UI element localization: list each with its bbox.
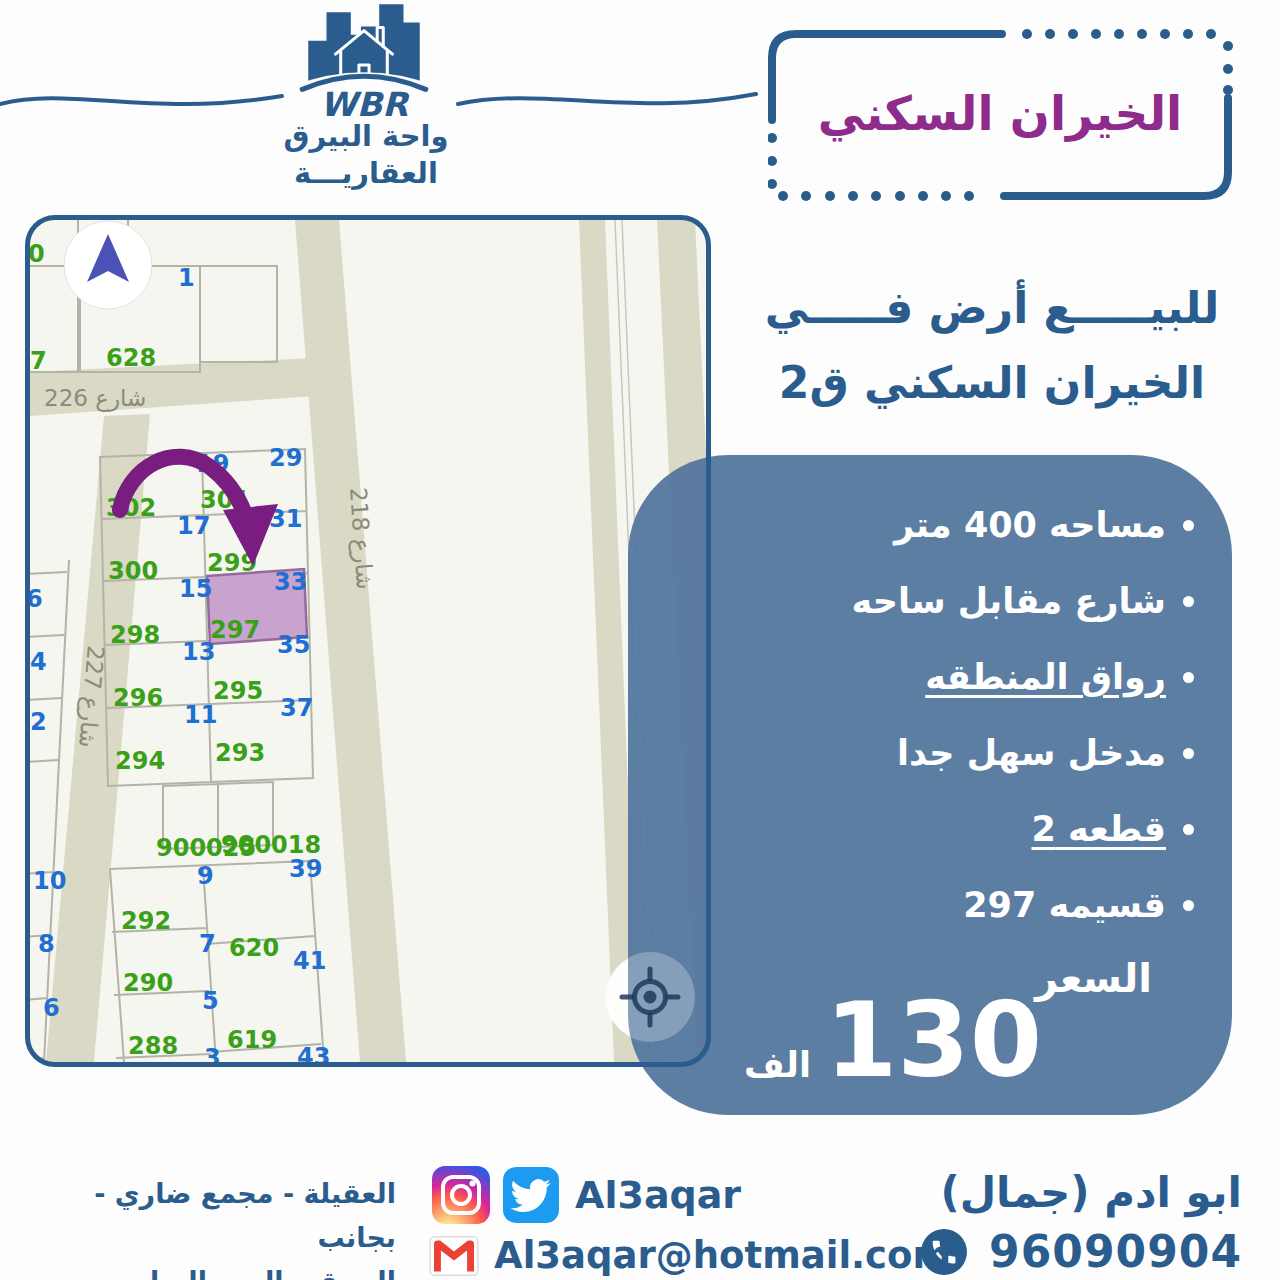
svg-text:17: 17 [177, 512, 210, 540]
header-wave-left-icon [0, 78, 290, 126]
sale-headline-line2: الخيران السكني ق2 [746, 345, 1238, 420]
svg-text:15: 15 [179, 575, 212, 603]
svg-text:6: 6 [30, 585, 43, 613]
svg-text:292: 292 [121, 907, 171, 935]
north-compass-icon [64, 221, 152, 309]
bullet-dot-icon [1183, 672, 1194, 683]
svg-text:9: 9 [197, 862, 214, 890]
svg-text:294: 294 [115, 747, 165, 775]
svg-text:295: 295 [213, 677, 263, 705]
svg-text:7: 7 [30, 347, 47, 375]
svg-text:7: 7 [199, 930, 216, 958]
social-row: Al3aqar [432, 1166, 741, 1224]
details-panel: مساحه 400 مترشارع مقابل ساحهرواق المنطقه… [628, 455, 1232, 1115]
svg-text:300: 300 [108, 557, 158, 585]
feature-item: مساحه 400 متر [628, 487, 1232, 563]
office-address-line2: البيرق - الدور السادس - مكتب 6 [24, 1260, 396, 1280]
svg-text:شارع 226: شارع 226 [44, 385, 146, 412]
feature-item: مدخل سهل جدا [628, 715, 1232, 791]
svg-text:290: 290 [123, 969, 173, 997]
bullet-dot-icon [1183, 520, 1194, 531]
svg-text:11: 11 [184, 701, 217, 729]
svg-text:8: 8 [38, 930, 55, 958]
svg-text:620: 620 [229, 934, 279, 962]
gmail-icon [428, 1236, 480, 1276]
header-wave-right-icon [452, 78, 762, 126]
brand-name-line2: العقاريـــة [268, 155, 464, 192]
svg-text:43: 43 [297, 1043, 330, 1062]
feature-text: قطعه 2 [1031, 809, 1166, 849]
svg-text:628: 628 [106, 344, 156, 372]
svg-text:293: 293 [215, 739, 265, 767]
svg-text:4: 4 [30, 648, 47, 676]
phone-row: 96090904 [917, 1226, 1242, 1277]
feature-item: شارع مقابل ساحه [628, 563, 1232, 639]
bullet-dot-icon [1183, 824, 1194, 835]
svg-text:1: 1 [178, 264, 195, 292]
svg-text:39: 39 [289, 855, 322, 883]
brand-name: واحة البيرق العقاريـــة [268, 118, 464, 192]
svg-text:13: 13 [182, 638, 215, 666]
svg-text:296: 296 [113, 684, 163, 712]
feature-item: رواق المنطقه [628, 639, 1232, 715]
svg-text:10: 10 [33, 867, 66, 895]
bullet-dot-icon [1183, 748, 1194, 759]
sale-headline-line1: للبيـــــع أرض فـــــي [746, 270, 1238, 345]
svg-text:33: 33 [274, 568, 307, 596]
svg-text:29: 29 [269, 444, 302, 472]
svg-text:2: 2 [30, 708, 47, 736]
svg-text:41: 41 [293, 947, 326, 975]
feature-text: رواق المنطقه [925, 657, 1166, 697]
price-value: 130 [825, 993, 1042, 1089]
price-unit: الف [744, 1045, 811, 1085]
svg-text:297: 297 [210, 616, 260, 644]
price: الف 130 [730, 993, 1042, 1089]
project-title: الخيران السكني [818, 86, 1182, 147]
gps-target-icon[interactable] [585, 932, 715, 1062]
phone-number[interactable]: 96090904 [989, 1226, 1242, 1277]
feature-text: مساحه 400 متر [894, 505, 1166, 545]
feature-item: قطعه 2 [628, 791, 1232, 867]
email-address[interactable]: Al3aqar@hotmail.com [494, 1234, 951, 1277]
bullet-dot-icon [1183, 596, 1194, 607]
svg-text:35: 35 [277, 631, 310, 659]
brand-name-line1: واحة البيرق [268, 118, 464, 155]
svg-text:619: 619 [227, 1026, 277, 1054]
flyer-canvas: WBR واحة البيرق العقاريـــة الخيران السك… [0, 0, 1280, 1280]
feature-text: قسيمه 297 [963, 885, 1166, 925]
svg-text:6: 6 [43, 994, 60, 1022]
feature-list: مساحه 400 مترشارع مقابل ساحهرواق المنطقه… [628, 455, 1232, 943]
svg-text:5: 5 [202, 987, 219, 1015]
social-handle[interactable]: Al3aqar [575, 1173, 741, 1217]
svg-text:0: 0 [30, 240, 45, 268]
office-address-line1: العقيلة - مجمع ضاري - بجانب [24, 1172, 396, 1260]
twitter-icon[interactable] [503, 1167, 559, 1223]
feature-text: شارع مقابل ساحه [852, 581, 1166, 621]
office-address: العقيلة - مجمع ضاري - بجانب البيرق - الد… [24, 1172, 396, 1280]
instagram-icon[interactable] [432, 1166, 490, 1224]
svg-text:3: 3 [204, 1044, 221, 1062]
wbr-castle-logo-icon: WBR [288, 0, 440, 125]
price-label: السعر [1035, 955, 1152, 1001]
svg-text:37: 37 [280, 694, 313, 722]
bullet-dot-icon [1183, 900, 1194, 911]
agent-name: ابو ادم (جمال) [940, 1168, 1242, 1217]
email-row: Al3aqar@hotmail.com [428, 1234, 951, 1277]
sale-headline: للبيـــــع أرض فـــــي الخيران السكني ق2 [746, 270, 1238, 420]
feature-item: قسيمه 297 [628, 867, 1232, 943]
svg-text:288: 288 [128, 1032, 178, 1060]
project-badge: الخيران السكني [768, 28, 1232, 204]
feature-text: مدخل سهل جدا [897, 733, 1166, 773]
svg-text:298: 298 [110, 621, 160, 649]
